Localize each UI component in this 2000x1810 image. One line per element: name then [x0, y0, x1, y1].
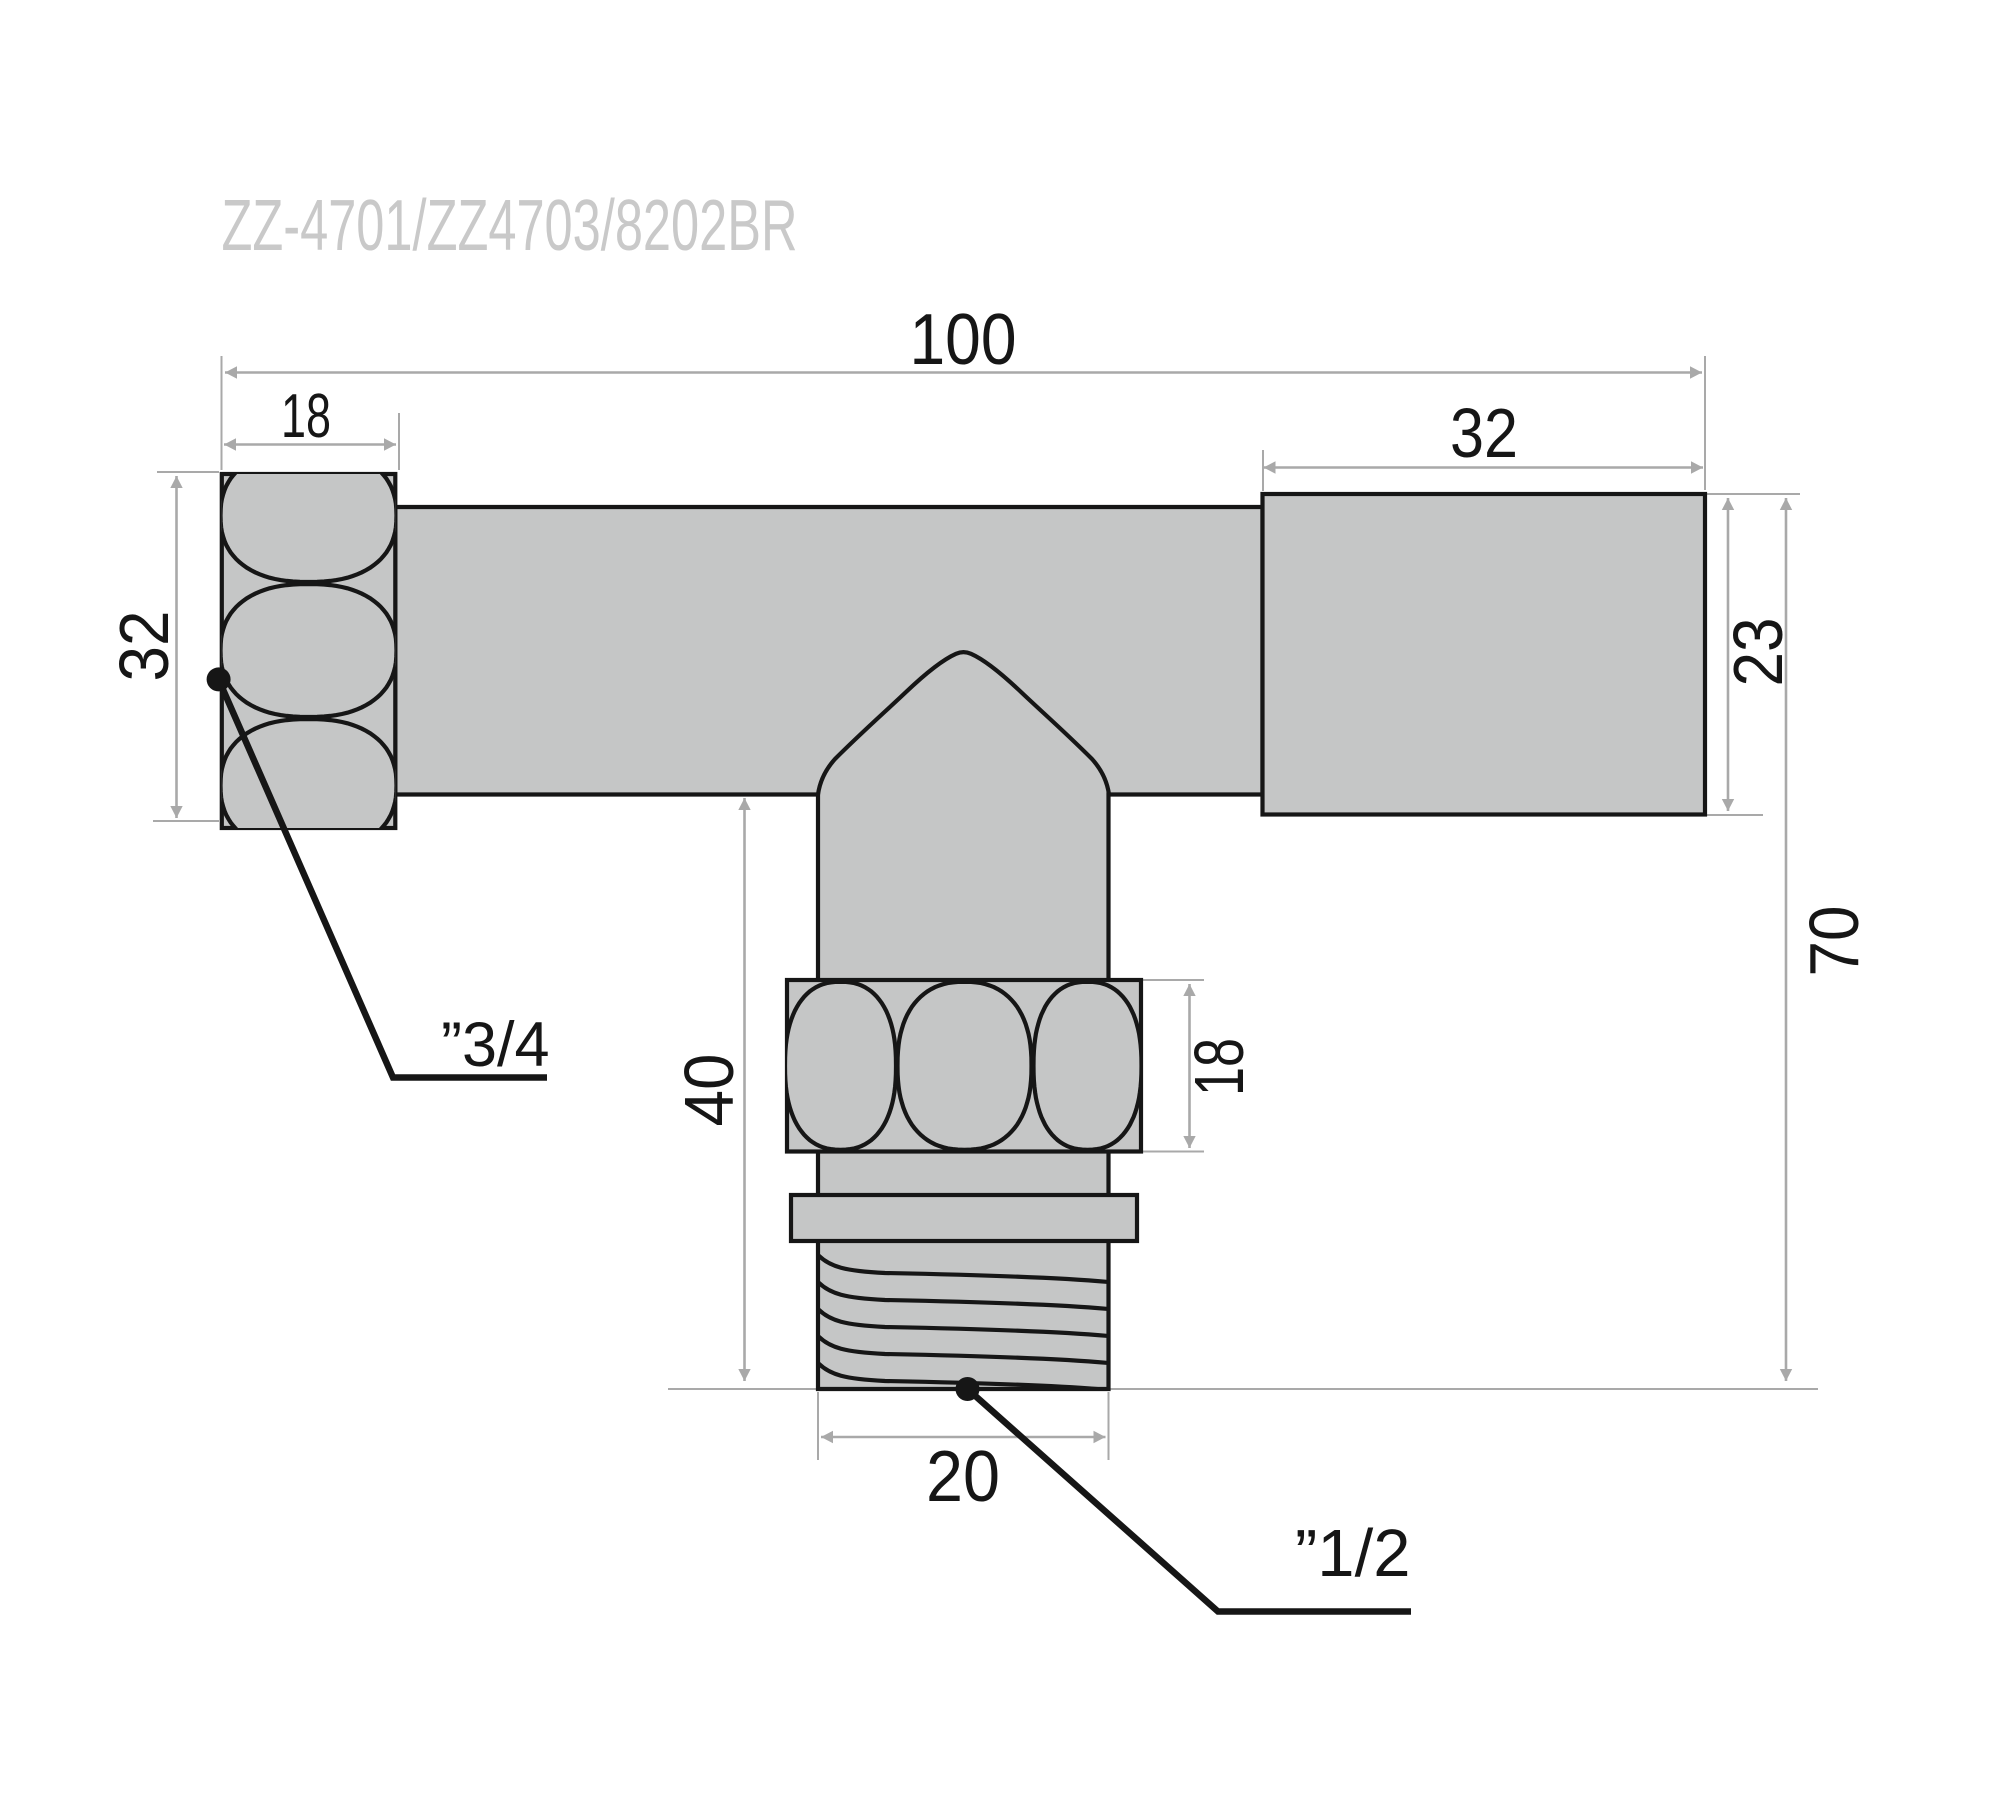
svg-text:32: 32 [1450, 394, 1518, 472]
svg-text:ZZ-4701/ZZ4703/8202BR: ZZ-4701/ZZ4703/8202BR [222, 186, 798, 266]
svg-text:18: 18 [1180, 1038, 1258, 1096]
svg-text:40: 40 [670, 1054, 748, 1127]
svg-text:20: 20 [926, 1437, 1000, 1517]
svg-text:”1/2: ”1/2 [1295, 1516, 1410, 1591]
svg-text:70: 70 [1795, 906, 1873, 977]
svg-text:100: 100 [910, 300, 1017, 380]
svg-text:”3/4: ”3/4 [441, 1010, 550, 1080]
svg-text:32: 32 [105, 611, 183, 682]
svg-text:18: 18 [281, 382, 331, 451]
